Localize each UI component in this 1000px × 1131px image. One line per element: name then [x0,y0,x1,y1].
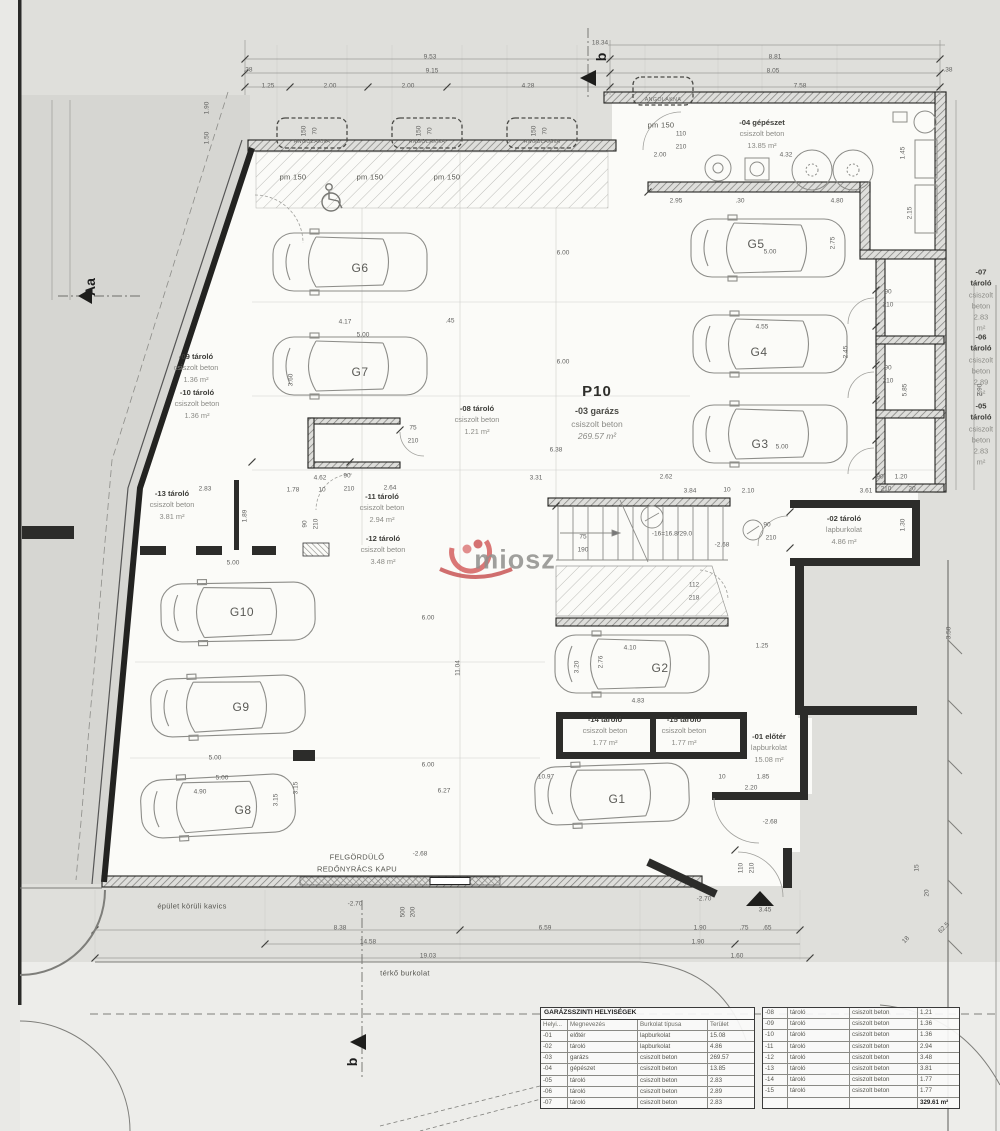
legend-cell: tároló [788,1064,850,1074]
legend-cell: csiszolt beton [850,1053,918,1063]
legend-cell: csiszolt beton [638,1098,708,1108]
legend-cell: csiszolt beton [850,1075,918,1085]
legend-cell [763,1098,788,1108]
ramp-hatch [556,566,728,616]
legend-cell: csiszolt beton [638,1053,708,1063]
legend-cell: 3.81 [918,1064,959,1074]
legend-cell: -11 [763,1042,788,1052]
legend-cell: lapburkolat [638,1031,708,1041]
legend-cell: tároló [788,1053,850,1063]
legend-cell: -05 [541,1076,568,1086]
legend-cell [788,1098,850,1108]
legend-row: -06 tároló csiszolt beton 2.89 [541,1087,754,1098]
rollup-gate [300,877,500,885]
floorplan-drawing [0,0,1000,1131]
legend-cell: előtér [568,1031,638,1041]
legend-cell: csiszolt beton [638,1076,708,1086]
pier [303,543,329,556]
legend-cell: gépészet [568,1064,638,1074]
legend-row: -13 tároló csiszolt beton 3.81 [763,1064,959,1075]
legend-cell: garázs [568,1053,638,1063]
legend-cell: csiszolt beton [638,1087,708,1097]
legend-header-cell: Terület [708,1020,754,1030]
legend-cell: 1.77 [918,1075,959,1085]
legend-cell: -01 [541,1031,568,1041]
legend-cell: 4.86 [708,1042,754,1052]
legend-cell: -15 [763,1086,788,1096]
legend-row: -09 tároló csiszolt beton 1.36 [763,1019,959,1030]
legend-row: -05 tároló csiszolt beton 2.83 [541,1076,754,1087]
legend-header-row: Helyi... Megnevezés Burkolat típusa Terü… [541,1020,754,1031]
legend-cell: tároló [568,1076,638,1086]
legend-cell: tároló [788,1008,850,1018]
legend-cell: 1.36 [918,1030,959,1040]
legend-cell: csiszolt beton [850,1008,918,1018]
legend-rows-right: -08 tároló csiszolt beton 1.21 -09 tárol… [763,1008,959,1108]
legend-cell: -04 [541,1064,568,1074]
legend-cell: tároló [788,1042,850,1052]
legend-row: -04 gépészet csiszolt beton 13.85 [541,1064,754,1075]
legend-header-cell: Helyi... [541,1020,568,1030]
legend-row: -07 tároló csiszolt beton 2.83 [541,1098,754,1108]
legend-cell: 269.57 [708,1053,754,1063]
legend-cell: -06 [541,1087,568,1097]
legend-row: -15 tároló csiszolt beton 1.77 [763,1086,959,1097]
legend-cell [850,1098,918,1108]
legend-cell: tároló [568,1042,638,1052]
legend-cell: csiszolt beton [850,1019,918,1029]
legend-row: -08 tároló csiszolt beton 1.21 [763,1008,959,1019]
legend-cell: 15.08 [708,1031,754,1041]
legend-cell: 2.83 [708,1098,754,1108]
legend-cell: -14 [763,1075,788,1085]
legend-cell: 1.36 [918,1019,959,1029]
legend-cell: tároló [568,1098,638,1108]
legend-cell: 329.61 m² [918,1098,959,1108]
legend-header-cell: Megnevezés [568,1020,638,1030]
legend-row: -01 előtér lapburkolat 15.08 [541,1031,754,1042]
legend-row: -11 tároló csiszolt beton 2.94 [763,1042,959,1053]
legend-cell: 2.89 [708,1087,754,1097]
legend-cell: csiszolt beton [850,1030,918,1040]
legend-header-cell: Burkolat típusa [638,1020,708,1030]
legend-cell: 2.94 [918,1042,959,1052]
legend-cell: -09 [763,1019,788,1029]
legend-cell: -12 [763,1053,788,1063]
legend-cell: -08 [763,1008,788,1018]
legend-row: -10 tároló csiszolt beton 1.36 [763,1030,959,1041]
legend-table-right: -08 tároló csiszolt beton 1.21 -09 tárol… [762,1007,960,1109]
legend-row: -14 tároló csiszolt beton 1.77 [763,1075,959,1086]
legend-cell: lapburkolat [638,1042,708,1052]
legend-cell: -02 [541,1042,568,1052]
legend-cell: tároló [788,1075,850,1085]
legend-cell: -13 [763,1064,788,1074]
legend-row: 329.61 m² [763,1098,959,1108]
legend-cell: csiszolt beton [850,1064,918,1074]
legend-cell: 1.77 [918,1086,959,1096]
legend-cell: 2.83 [708,1076,754,1086]
legend-table-left: GARÁZSSZINTI HELYISÉGEK Helyi... Megneve… [540,1007,755,1109]
legend-cell: 13.85 [708,1064,754,1074]
legend-cell: -07 [541,1098,568,1108]
legend-row: -02 tároló lapburkolat 4.86 [541,1042,754,1053]
legend-row: -03 garázs csiszolt beton 269.57 [541,1053,754,1064]
legend-cell: -10 [763,1030,788,1040]
legend-cell: csiszolt beton [850,1086,918,1096]
legend-cell: tároló [788,1086,850,1096]
legend-rows-left: -01 előtér lapburkolat 15.08 -02 tároló … [541,1031,754,1108]
legend-cell: csiszolt beton [850,1042,918,1052]
legend-row: -12 tároló csiszolt beton 3.48 [763,1053,959,1064]
floorplan-page: P10 -03 garázs csiszolt beton 269.57 m² … [0,0,1000,1131]
legend-cell: csiszolt beton [638,1064,708,1074]
legend-title: GARÁZSSZINTI HELYISÉGEK [541,1008,754,1020]
legend-cell: 3.48 [918,1053,959,1063]
legend-cell: 1.21 [918,1008,959,1018]
legend-cell: -03 [541,1053,568,1063]
legend-cell: tároló [568,1087,638,1097]
legend-cell: tároló [788,1030,850,1040]
legend-cell: tároló [788,1019,850,1029]
entry-ramp-hatch [256,152,608,208]
